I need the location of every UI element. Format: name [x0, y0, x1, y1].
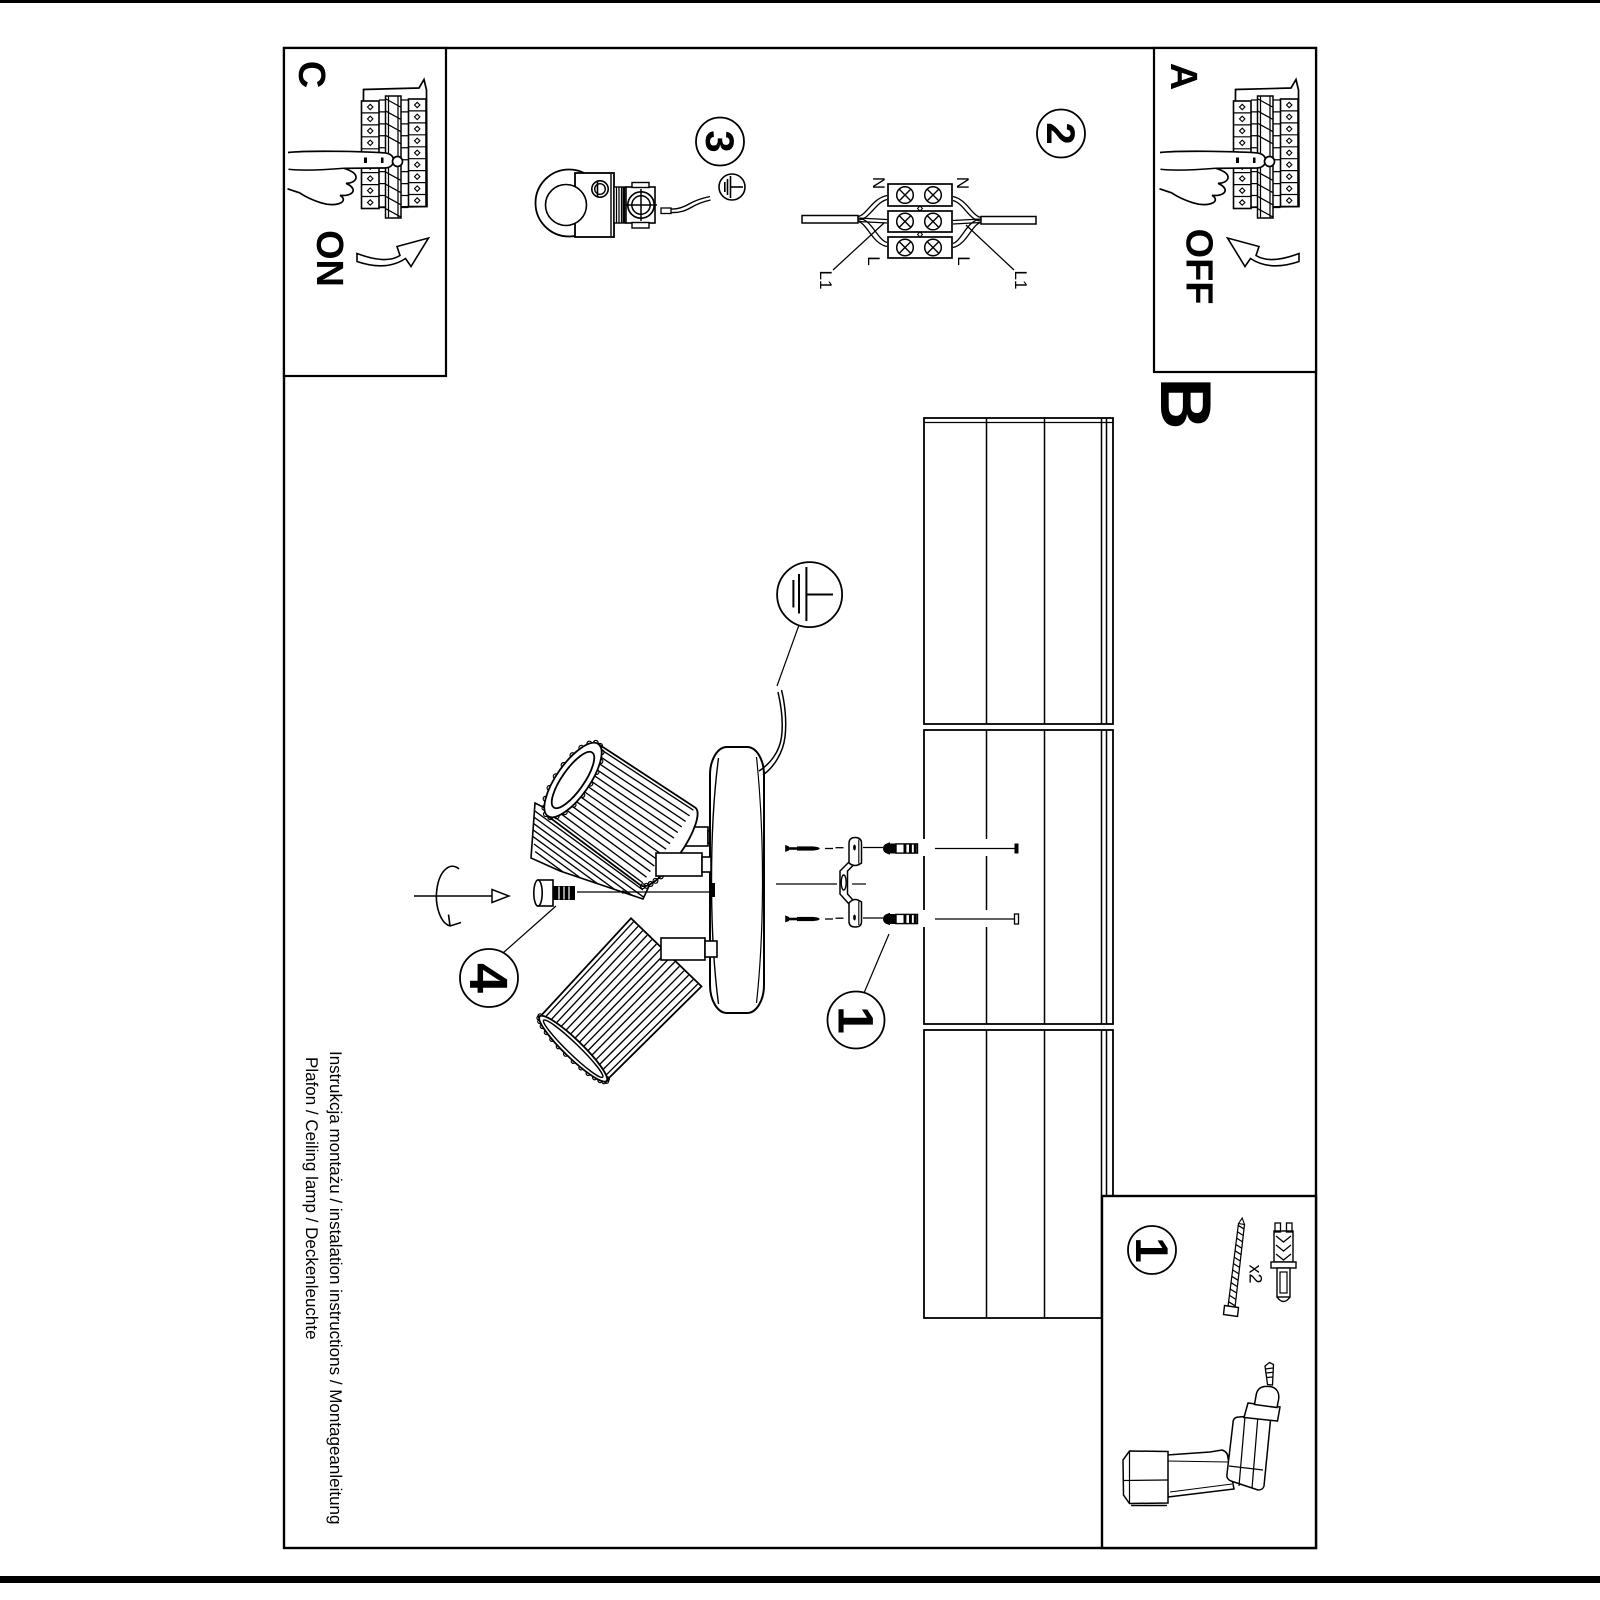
svg-text:A: A	[1162, 63, 1204, 90]
svg-text:N: N	[869, 177, 888, 189]
svg-text:N: N	[953, 177, 972, 189]
svg-text:4: 4	[458, 963, 518, 993]
svg-text:2: 2	[1038, 122, 1082, 144]
svg-text:1: 1	[828, 1006, 884, 1034]
svg-text:L: L	[864, 256, 883, 265]
svg-text:OFF: OFF	[1178, 229, 1220, 305]
svg-text:B: B	[1145, 378, 1225, 430]
svg-text:ON: ON	[308, 230, 350, 287]
svg-text:L1: L1	[816, 271, 835, 290]
svg-text:1: 1	[1126, 1237, 1178, 1263]
svg-text:L: L	[954, 256, 973, 265]
svg-text:L1: L1	[1011, 271, 1030, 290]
svg-text:Plafon / Ceiling lamp / Decken: Plafon / Ceiling lamp / Deckenleuchte	[302, 1057, 321, 1340]
svg-text:x2: x2	[1246, 1264, 1266, 1283]
svg-text:Instrukcja montażu / instalati: Instrukcja montażu / instalation instruc…	[326, 1051, 345, 1524]
svg-text:3: 3	[697, 130, 741, 152]
svg-text:C: C	[290, 61, 332, 88]
